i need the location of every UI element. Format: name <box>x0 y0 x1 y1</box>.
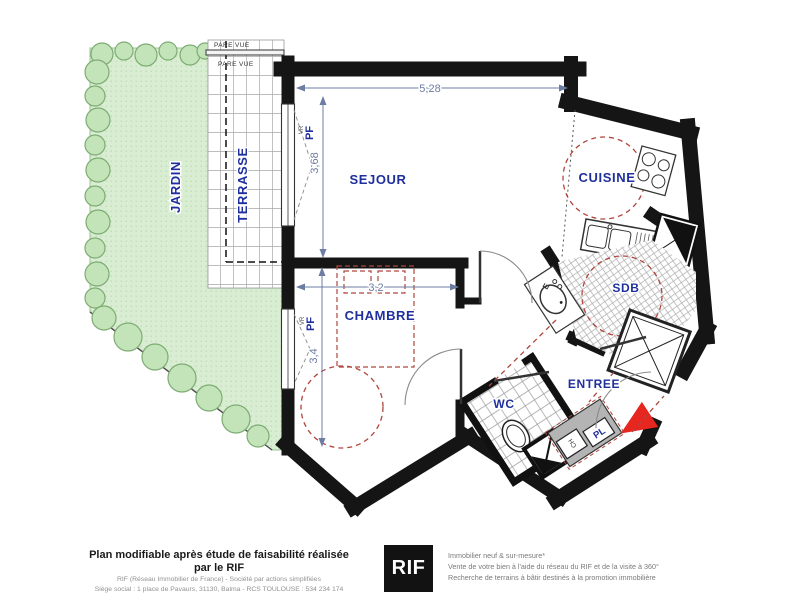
vr-label-chambre: VR <box>300 316 306 325</box>
footer-service-line-3: Recherche de terrains à bâtir destinés à… <box>448 573 788 584</box>
terrace-area: PARE VUE PARE VUE TERRASSE <box>206 40 284 288</box>
footer-service-line-2: Vente de votre bien à l'aide du réseau d… <box>448 562 788 573</box>
room-label-cuisine: CUISINE <box>579 170 636 185</box>
footer-headline: Plan modifiable après étude de faisabili… <box>85 549 353 575</box>
room-label-sejour: SEJOUR <box>349 172 406 187</box>
hob-icon <box>631 146 676 196</box>
footer-company-line: RIF (Réseau Immobilier de France) - Soci… <box>85 576 353 585</box>
floor-plan-svg: JARDIN PARE VUE PARE VUE TERRASSE <box>0 0 800 540</box>
window-sejour <box>282 104 313 226</box>
vr-label-sejour: VR <box>299 125 305 134</box>
dimension-chambre-width: 3,2 <box>368 282 383 294</box>
pf-label-sejour: PF <box>304 126 316 140</box>
pf-label-chambre: PF <box>305 317 317 331</box>
floor-plan-page: JARDIN PARE VUE PARE VUE TERRASSE <box>0 0 800 600</box>
room-label-wc: WC <box>493 397 514 411</box>
dimension-sejour-depth: 3,68 <box>309 152 321 173</box>
room-label-jardin: JARDIN <box>168 161 183 213</box>
pare-vue-label-2: PARE VUE <box>218 61 254 68</box>
dimension-chambre-depth: 3,4 <box>308 348 320 363</box>
pare-vue-label-1: PARE VUE <box>214 42 250 49</box>
room-label-sdb: SDB <box>612 281 639 295</box>
room-label-entree: ENTREE <box>568 377 620 391</box>
footer-address-line: Siège social : 1 place de Pavaurs, 31130… <box>85 586 353 595</box>
room-label-chambre: CHAMBRE <box>345 308 416 323</box>
clearance-circle-chambre <box>301 366 383 448</box>
rif-logo-text: RIF <box>392 557 426 580</box>
pare-vue-screen <box>206 50 284 55</box>
footer-left-block: Plan modifiable après étude de faisabili… <box>85 549 353 594</box>
rif-logo: RIF <box>384 545 433 592</box>
footer-service-line-1: Immobilier neuf & sur-mesure* <box>448 551 788 562</box>
dimension-sejour-width: 5,28 <box>419 83 440 95</box>
footer-right-block: Immobilier neuf & sur-mesure* Vente de v… <box>448 551 788 583</box>
room-label-terrasse: TERRASSE <box>235 147 250 223</box>
